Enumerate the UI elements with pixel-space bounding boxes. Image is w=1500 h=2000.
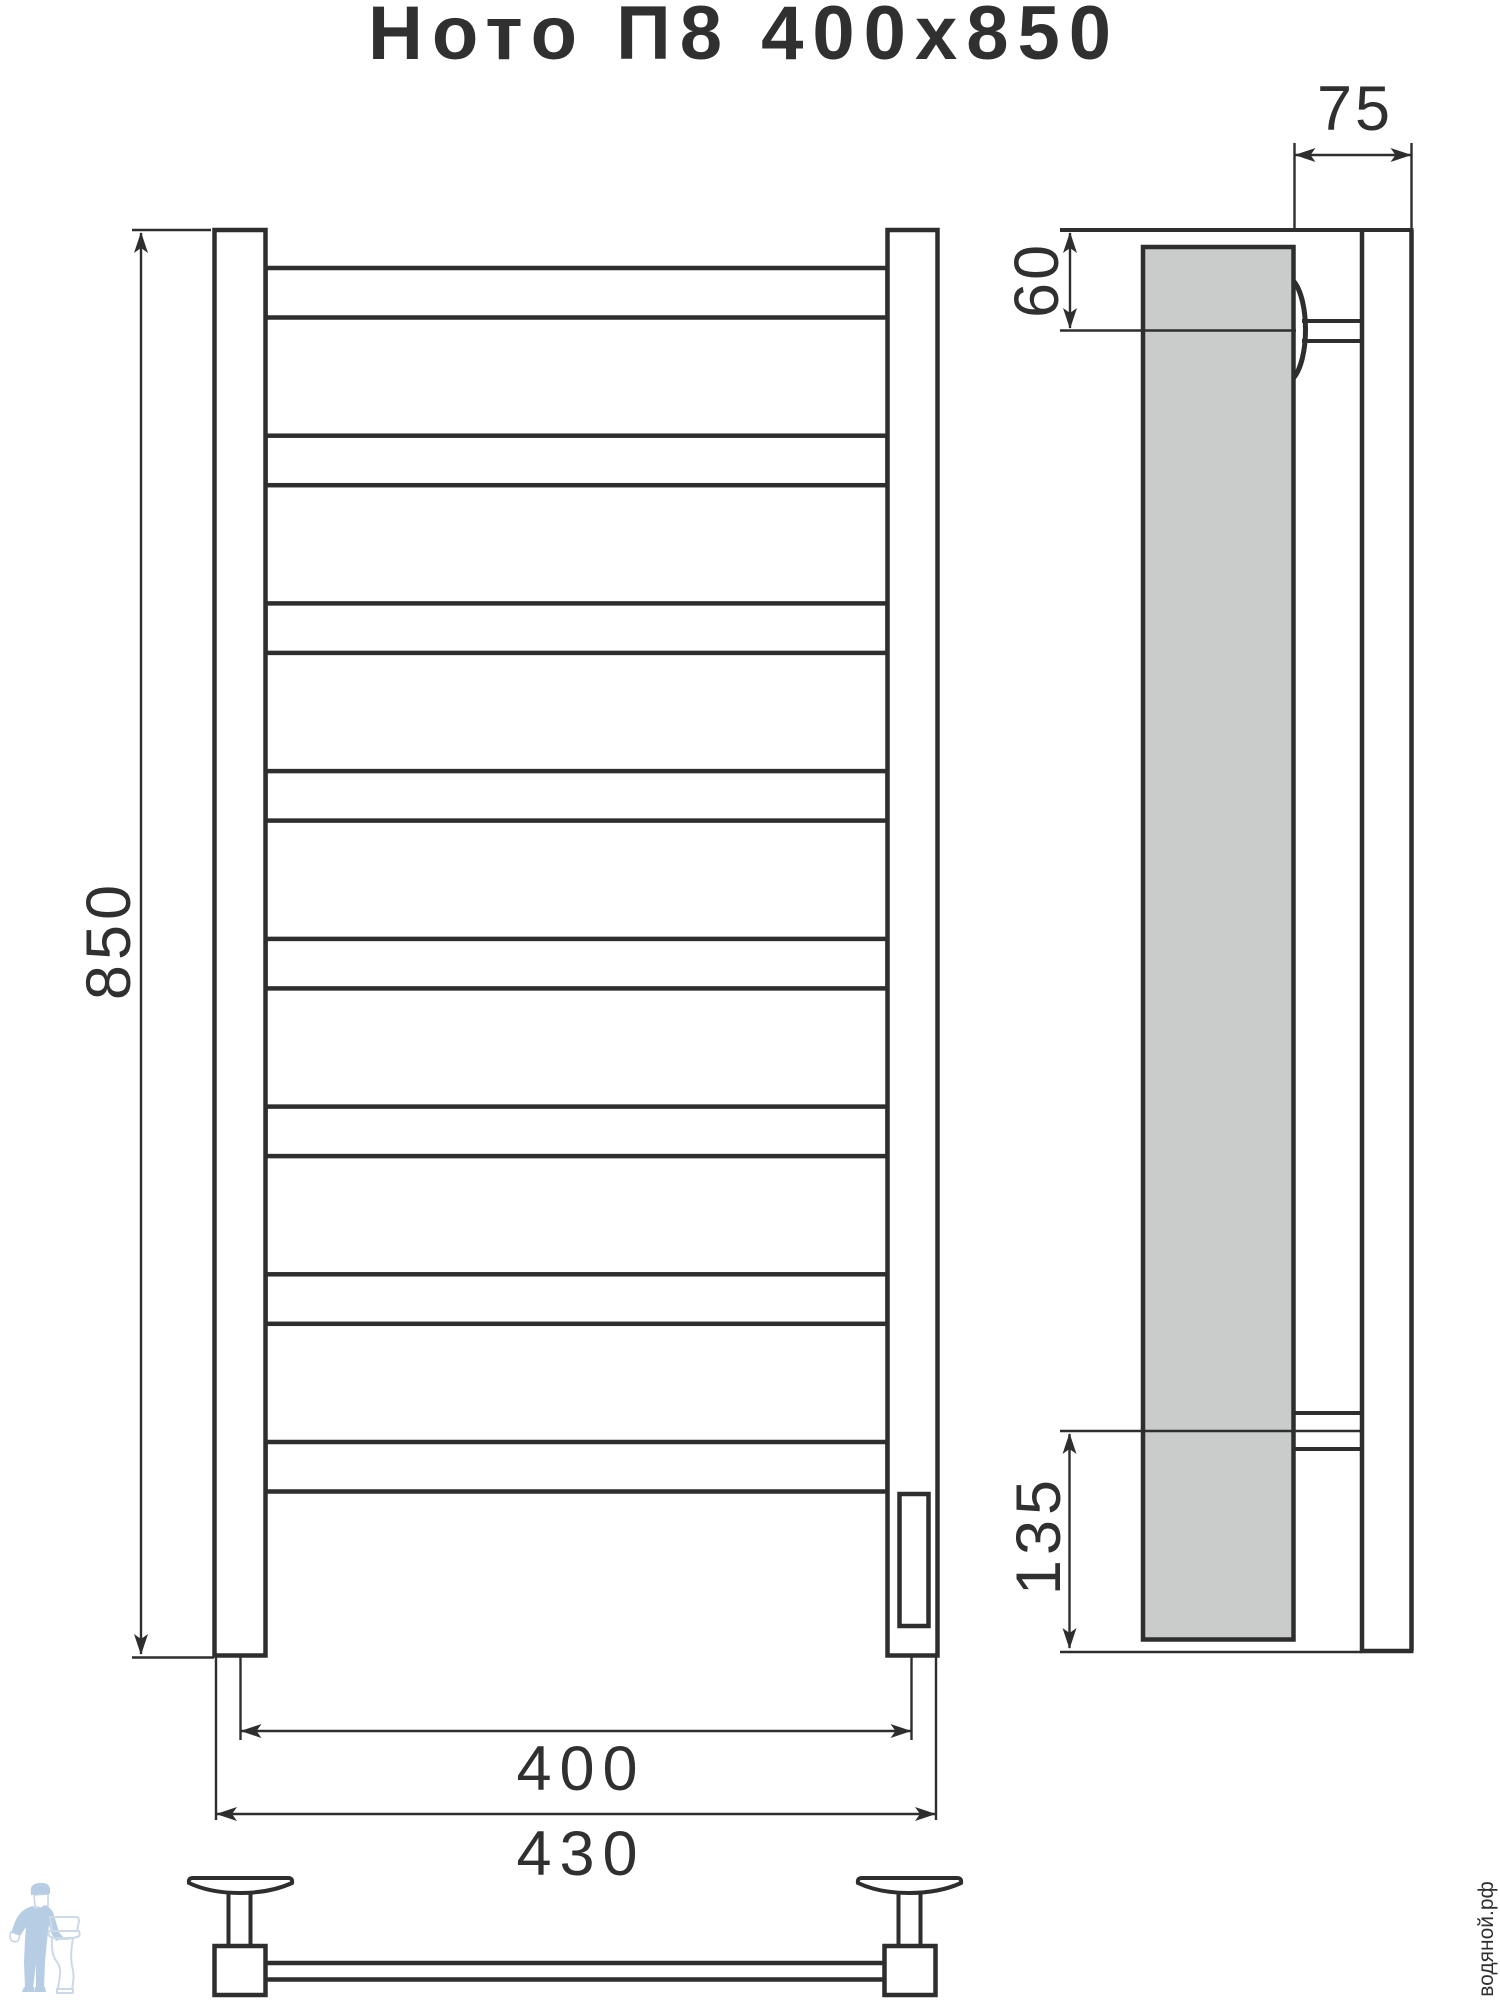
svg-text:водяной.рф: водяной.рф xyxy=(1475,1881,1498,1997)
svg-text:135: 135 xyxy=(1004,1475,1074,1595)
svg-text:Ното П8 400х850: Ното П8 400х850 xyxy=(368,0,1120,76)
svg-text:400: 400 xyxy=(516,1734,645,1804)
svg-text:430: 430 xyxy=(516,1819,645,1889)
svg-text:75: 75 xyxy=(1317,74,1393,144)
svg-text:850: 850 xyxy=(74,880,144,1000)
svg-text:60: 60 xyxy=(1002,242,1072,318)
